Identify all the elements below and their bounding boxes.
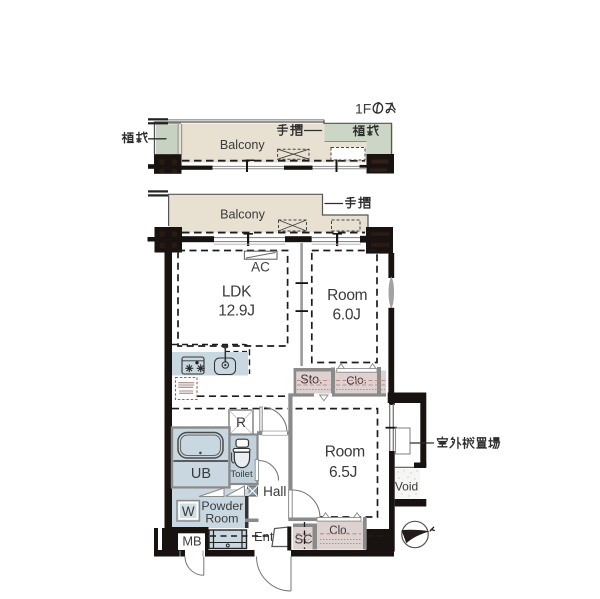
svg-text:W: W (182, 504, 195, 519)
svg-text:Sto.: Sto. (300, 373, 322, 387)
svg-text:Room: Room (327, 287, 367, 304)
svg-text:LDK: LDK (222, 284, 252, 301)
svg-text:Toilet: Toilet (230, 469, 253, 480)
svg-text:Hall: Hall (263, 484, 286, 499)
svg-text:Room: Room (205, 511, 238, 525)
svg-text:Balcony: Balcony (220, 138, 266, 152)
svg-text:6.0J: 6.0J (333, 306, 361, 323)
svg-text:AC: AC (251, 260, 270, 275)
svg-text:12.9J: 12.9J (218, 302, 254, 319)
svg-text:UB: UB (191, 466, 211, 482)
svg-text:Balcony: Balcony (220, 208, 266, 222)
svg-text:Room: Room (325, 444, 365, 461)
svg-text:Clo.: Clo. (329, 525, 349, 537)
svg-text:Void: Void (395, 480, 418, 494)
svg-text:6.5J: 6.5J (329, 464, 357, 481)
svg-text:R: R (236, 415, 246, 430)
svg-text:MB: MB (182, 533, 201, 548)
svg-text:1F: 1F (355, 101, 371, 117)
